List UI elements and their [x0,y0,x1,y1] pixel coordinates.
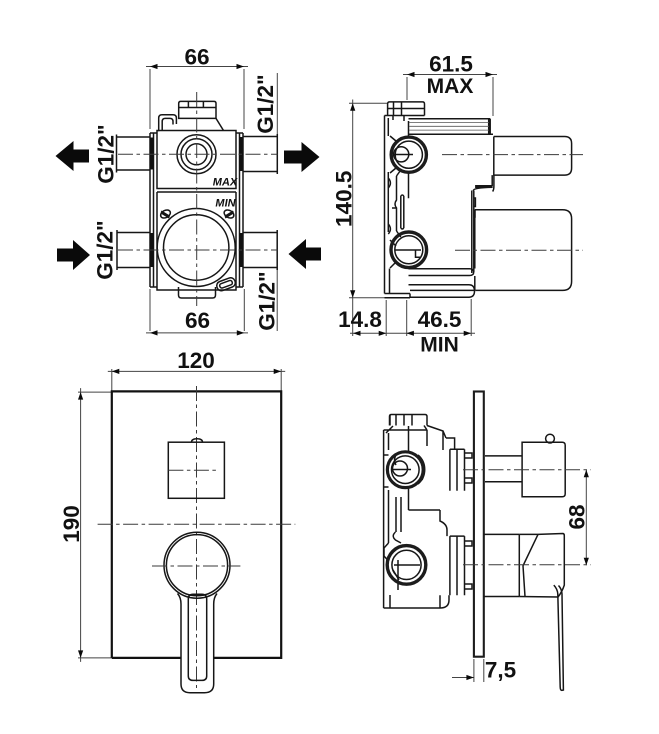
svg-text:G1/2": G1/2" [253,74,278,133]
svg-text:G1/2": G1/2" [93,220,118,279]
svg-text:61.5: 61.5 [429,52,473,77]
svg-text:MIN: MIN [420,334,459,357]
svg-text:G1/2": G1/2" [255,271,280,330]
svg-text:120: 120 [177,348,215,373]
svg-text:MAX: MAX [212,177,239,189]
svg-text:66: 66 [185,308,210,333]
svg-text:14.8: 14.8 [338,307,382,332]
svg-text:68: 68 [565,504,590,529]
svg-text:G1/2": G1/2" [94,124,119,183]
svg-text:MAX: MAX [427,75,474,98]
svg-text:MIN: MIN [214,198,236,210]
svg-text:7,5: 7,5 [485,658,516,683]
svg-text:46.5: 46.5 [418,307,462,332]
svg-text:66: 66 [184,45,209,70]
